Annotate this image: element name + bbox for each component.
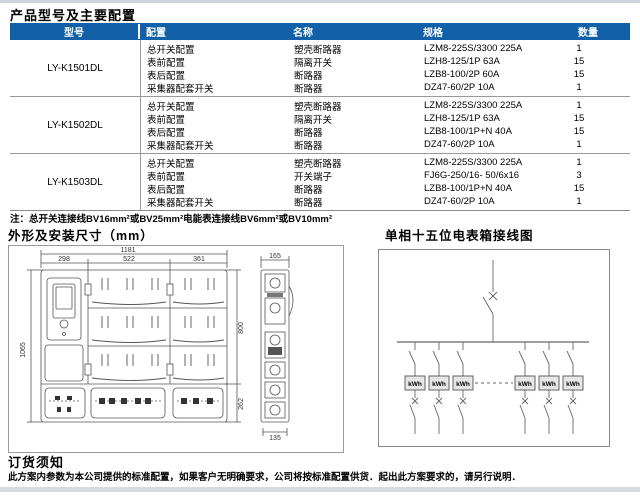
outline-drawing: 1181 298 522 361 1065 800 262 165 135	[9, 246, 341, 450]
meter-hooks-row2	[92, 316, 224, 343]
cell-name: 隔离开关	[294, 55, 424, 69]
model-cell: LY-K1501DL	[10, 40, 141, 96]
cell-qty: 15	[559, 183, 599, 194]
ordering-notice-text: 此方案内参数为本公司提供的标准配置，如果客户无明确要求，公司将按标准配置供货．起…	[8, 469, 632, 483]
table-row: 表前配置 开关端子 FJ6G-250/16- 50/6x16 3	[141, 169, 630, 182]
dim-label-col-middle: 522	[123, 256, 135, 263]
wiring-diagram-panel: kWh kWh kWh	[378, 249, 610, 447]
cell-config: 采集器配套开关	[141, 138, 294, 152]
cell-config: 采集器配套开关	[141, 81, 294, 95]
dim-label-height-lower: 262	[238, 398, 245, 410]
breaker-compartments	[45, 388, 223, 418]
model-group-3: LY-K1503DL 总开关配置 塑壳断路器 LZM8-225S/3300 22…	[10, 153, 630, 210]
cell-spec: DZ47-60/2P 10A	[424, 139, 559, 150]
cell-name: 断路器	[294, 138, 424, 152]
cell-spec: LZM8-225S/3300 225A	[424, 100, 559, 111]
meter-branch: kWh	[453, 342, 473, 434]
cell-spec: LZB8-100/1P+N 40A	[424, 183, 559, 194]
cell-config: 表前配置	[141, 169, 294, 183]
table-row: 表后配置 断路器 LZB8-100/1P+N 40A 15	[141, 182, 630, 195]
cell-name: 断路器	[294, 182, 424, 196]
cell-config: 采集器配套开关	[141, 195, 294, 209]
model-group-1: LY-K1501DL 总开关配置 塑壳断路器 LZM8-225S/3300 22…	[10, 40, 630, 96]
cell-qty: 1	[559, 100, 599, 111]
page-bottom-edge	[0, 487, 640, 492]
cell-qty: 3	[559, 170, 599, 181]
cell-config: 表后配置	[141, 68, 294, 82]
table-row: 采集器配套开关 断路器 DZ47-60/2P 10A 1	[141, 81, 630, 94]
cell-name: 断路器	[294, 125, 424, 139]
cell-spec: LZB8-100/2P 60A	[424, 69, 559, 80]
dim-label-side-width: 165	[269, 253, 281, 260]
dim-label-total-width: 1181	[120, 247, 135, 254]
side-view-drawing	[261, 256, 293, 436]
dim-label-height-upper: 800	[238, 322, 245, 334]
outline-drawing-panel: 1181 298 522 361 1065 800 262 165 135	[8, 245, 344, 453]
cell-spec: LZH8-125/1P 63A	[424, 113, 559, 124]
table-row: 采集器配套开关 断路器 DZ47-60/2P 10A 1	[141, 195, 630, 208]
dim-label-col-left: 298	[58, 256, 70, 263]
cell-qty: 1	[559, 157, 599, 168]
cell-qty: 15	[559, 69, 599, 80]
cell-name: 塑壳断路器	[294, 99, 424, 113]
cell-spec: LZM8-225S/3300 225A	[424, 43, 559, 54]
table-row: 总开关配置 塑壳断路器 LZM8-225S/3300 225A 1	[141, 99, 630, 112]
cell-name: 断路器	[294, 81, 424, 95]
cell-spec: LZM8-225S/3300 225A	[424, 157, 559, 168]
kwh-meter-label: kWh	[542, 381, 556, 388]
meter-branch: kWh	[539, 342, 559, 434]
cell-name: 断路器	[294, 68, 424, 82]
cell-spec: DZ47-60/2P 10A	[424, 82, 559, 93]
wiring-diagram: kWh kWh kWh	[379, 250, 607, 444]
table-row: 表后配置 断路器 LZB8-100/2P 60A 15	[141, 68, 630, 81]
dim-label-height-total: 1065	[20, 342, 27, 358]
main-breaker-symbol	[483, 260, 497, 342]
cell-name: 隔离开关	[294, 112, 424, 126]
cell-spec: LZH8-125/1P 63A	[424, 56, 559, 67]
model-config-rows: 总开关配置 塑壳断路器 LZM8-225S/3300 225A 1 表前配置 开…	[141, 154, 630, 210]
model-cell: LY-K1503DL	[10, 154, 141, 210]
cell-qty: 15	[559, 56, 599, 67]
kwh-meter-label: kWh	[566, 381, 580, 388]
table-row: 总开关配置 塑壳断路器 LZM8-225S/3300 225A 1	[141, 156, 630, 169]
meter-branch: kWh	[429, 342, 449, 434]
table-row: 表前配置 隔离开关 LZH8-125/1P 63A 15	[141, 112, 630, 125]
cell-config: 总开关配置	[141, 99, 294, 113]
page-top-edge	[0, 0, 640, 3]
cell-qty: 15	[559, 113, 599, 124]
cell-spec: LZB8-100/1P+N 40A	[424, 126, 559, 137]
header-cell-name: 名称	[293, 24, 423, 39]
page-title: 产品型号及主要配置	[10, 5, 136, 24]
header-cell-config: 配置	[140, 24, 293, 39]
dim-label-col-right: 361	[193, 256, 205, 263]
meter-branch: kWh	[405, 342, 425, 434]
cell-config: 表前配置	[141, 55, 294, 69]
dim-label-side-bottom: 135	[269, 435, 281, 442]
cell-config: 表前配置	[141, 112, 294, 126]
cell-qty: 1	[559, 139, 599, 150]
header-cell-spec: 规格	[423, 24, 558, 39]
table-row: 总开关配置 塑壳断路器 LZM8-225S/3300 225A 1	[141, 42, 630, 55]
cell-qty: 1	[559, 82, 599, 93]
kwh-meter-label: kWh	[408, 381, 422, 388]
wiring-section-title: 单相十五位电表箱接线图	[385, 225, 534, 244]
cell-name: 塑壳断路器	[294, 156, 424, 170]
model-cell: LY-K1502DL	[10, 97, 141, 153]
cell-spec: DZ47-60/2P 10A	[424, 196, 559, 207]
configuration-table: 型号 配置 名称 规格 数量 LY-K1501DL 总开关配置 塑壳断路器 LZ…	[10, 23, 630, 211]
cell-config: 表后配置	[141, 125, 294, 139]
cell-name: 开关端子	[294, 169, 424, 183]
cell-spec: FJ6G-250/16- 50/6x16	[424, 170, 559, 181]
table-row: 采集器配套开关 断路器 DZ47-60/2P 10A 1	[141, 138, 630, 151]
cell-qty: 15	[559, 126, 599, 137]
cell-config: 表后配置	[141, 182, 294, 196]
header-cell-qty: 数量	[558, 24, 618, 39]
table-row: 表后配置 断路器 LZB8-100/1P+N 40A 15	[141, 125, 630, 138]
table-row: 表前配置 隔离开关 LZH8-125/1P 63A 15	[141, 55, 630, 68]
dimensions-section-title: 外形及安装尺寸（mm）	[8, 225, 154, 244]
wiring-note-text: 注：总开关连接线BV16mm²或BV25mm²电能表连接线BV6mm²或BV10…	[10, 211, 332, 225]
header-cell-model: 型号	[10, 24, 140, 39]
table-header-row: 型号 配置 名称 规格 数量	[10, 23, 630, 40]
meter-hooks-row3	[92, 354, 224, 381]
meter-hooks-row1	[92, 278, 224, 305]
kwh-meter-label: kWh	[456, 381, 470, 388]
meter-branch: kWh	[515, 342, 535, 434]
model-config-rows: 总开关配置 塑壳断路器 LZM8-225S/3300 225A 1 表前配置 隔…	[141, 40, 630, 96]
model-config-rows: 总开关配置 塑壳断路器 LZM8-225S/3300 225A 1 表前配置 隔…	[141, 97, 630, 153]
cell-qty: 1	[559, 43, 599, 54]
model-group-2: LY-K1502DL 总开关配置 塑壳断路器 LZM8-225S/3300 22…	[10, 96, 630, 153]
cell-qty: 1	[559, 196, 599, 207]
kwh-meter-label: kWh	[518, 381, 532, 388]
cell-config: 总开关配置	[141, 156, 294, 170]
meter-branch: kWh	[563, 342, 583, 434]
cell-name: 断路器	[294, 195, 424, 209]
cell-config: 总开关配置	[141, 42, 294, 56]
cell-name: 塑壳断路器	[294, 42, 424, 56]
kwh-meter-label: kWh	[432, 381, 446, 388]
